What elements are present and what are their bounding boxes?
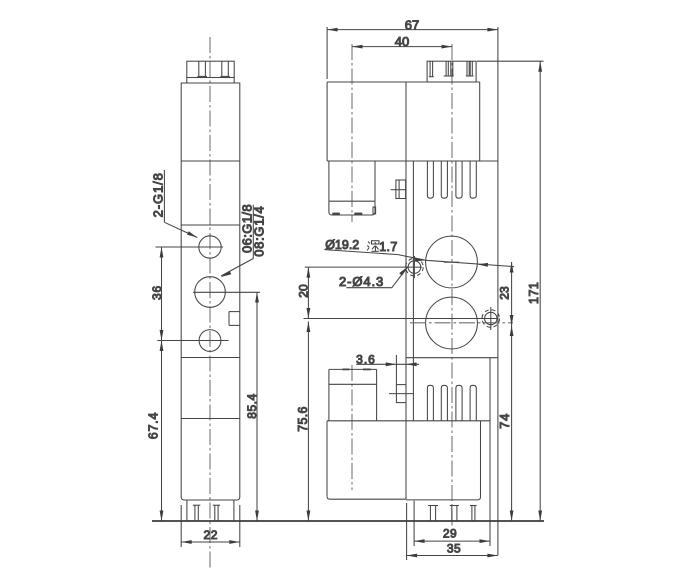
- svg-text:35: 35: [447, 541, 461, 555]
- svg-text:Ø19.2: Ø19.2: [325, 238, 359, 252]
- svg-text:74: 74: [497, 413, 512, 429]
- svg-text:29: 29: [443, 526, 457, 540]
- svg-text:2-G1/8: 2-G1/8: [151, 172, 166, 217]
- svg-text:08:G1/4: 08:G1/4: [251, 206, 266, 257]
- svg-text:22: 22: [204, 528, 219, 542]
- svg-text:75.6: 75.6: [296, 406, 310, 432]
- svg-text:20: 20: [296, 284, 310, 298]
- svg-text:171: 171: [527, 282, 541, 304]
- svg-text:36: 36: [150, 285, 164, 300]
- svg-text:67.4: 67.4: [147, 412, 161, 440]
- svg-text:23: 23: [498, 286, 512, 300]
- svg-text:67: 67: [405, 18, 419, 33]
- svg-text:85.4: 85.4: [245, 393, 259, 418]
- svg-text:2-Ø4.3: 2-Ø4.3: [339, 274, 384, 289]
- svg-text:40: 40: [395, 34, 409, 49]
- svg-text:1.7: 1.7: [379, 240, 397, 254]
- svg-text:3.6: 3.6: [356, 352, 376, 366]
